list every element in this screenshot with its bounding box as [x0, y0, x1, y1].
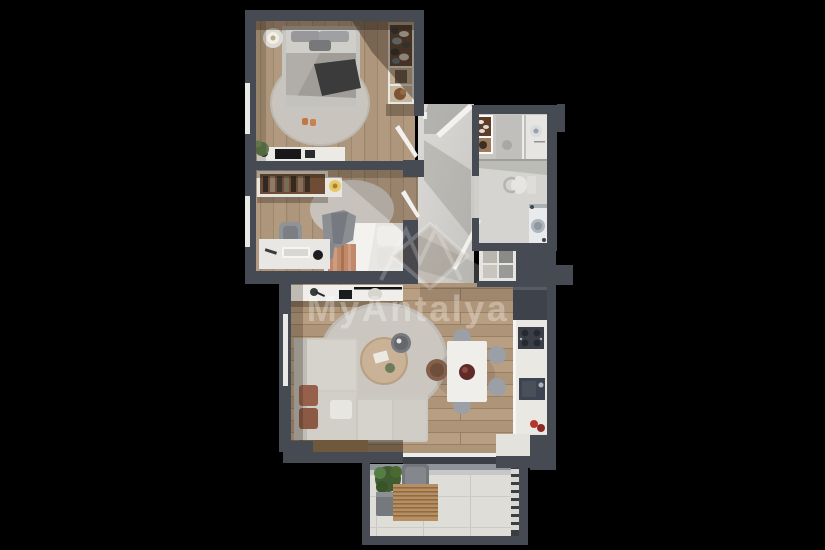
svg-text:MyAntalya: MyAntalya	[307, 288, 510, 329]
